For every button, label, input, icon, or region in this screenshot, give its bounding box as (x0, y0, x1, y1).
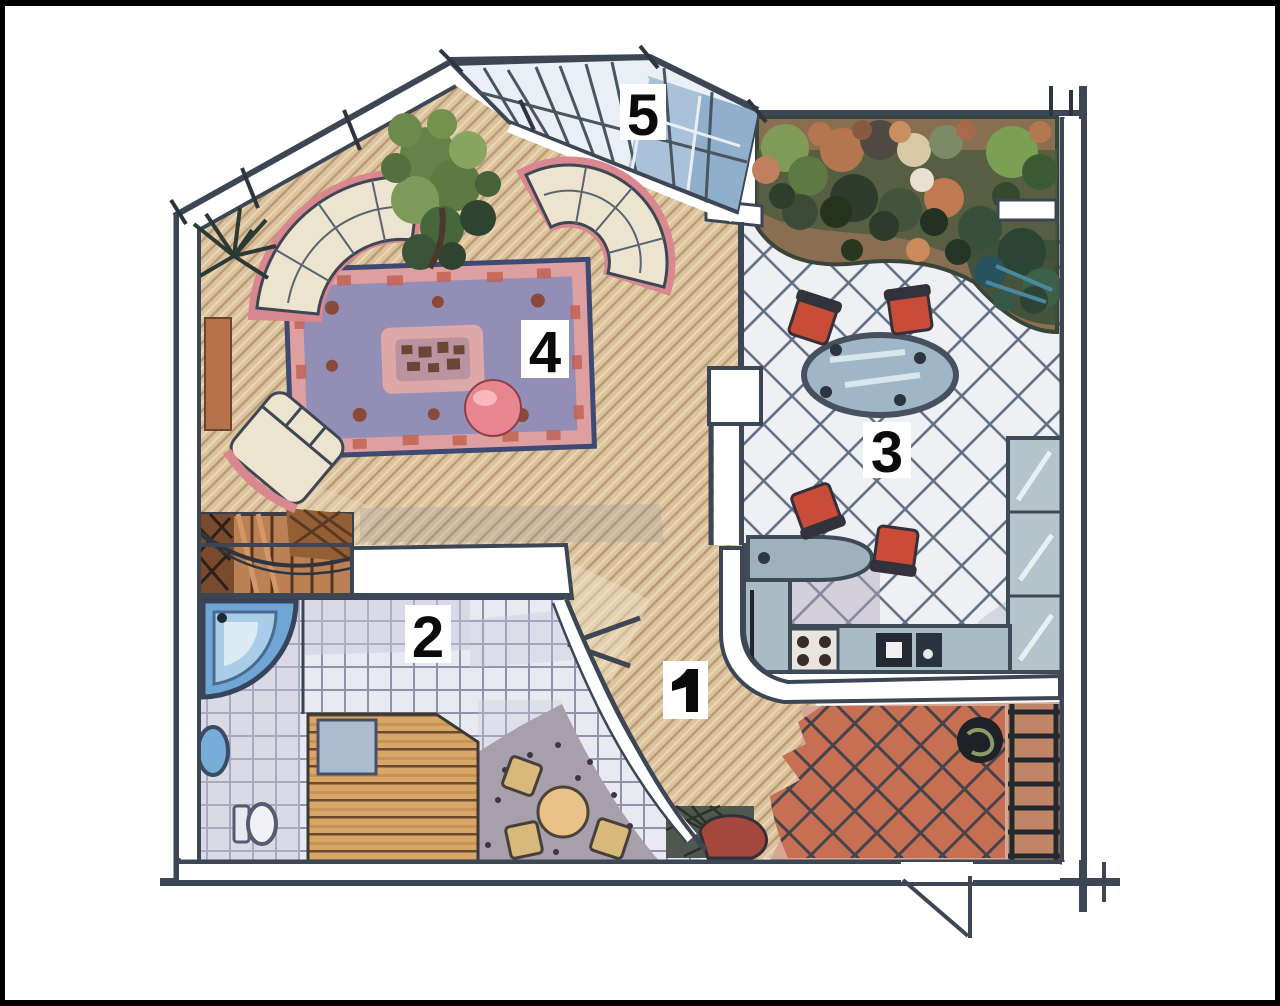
svg-text:5: 5 (627, 83, 659, 148)
svg-text:4: 4 (529, 320, 561, 385)
svg-text:3: 3 (871, 420, 903, 485)
svg-text:2: 2 (412, 605, 444, 670)
